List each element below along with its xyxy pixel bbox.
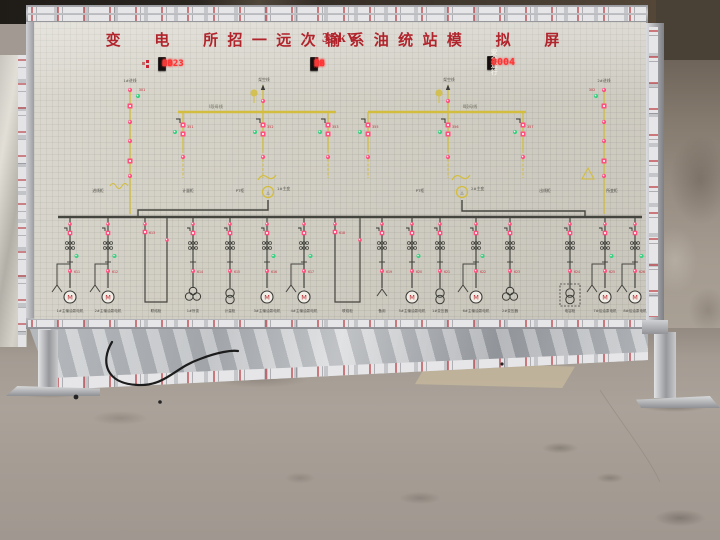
date-day-unit: 日: [162, 61, 168, 67]
left-leg: [38, 330, 58, 390]
frame-left-rail: [26, 22, 34, 320]
right-leg: [654, 332, 676, 398]
frame-bottom-rail: [26, 318, 648, 329]
frame-sticker-row: [28, 15, 646, 21]
safety-days-display: 安全运行 0004 天: [487, 56, 495, 70]
panel-title: 招 远 输 油 站 35kV 变 电 所 一 次 系 统 模 拟 屏: [40, 28, 640, 50]
frame-sticker-row: [28, 7, 646, 13]
mimic-board-face: [34, 22, 646, 319]
date-ornament-dots: [146, 60, 149, 63]
safety-unit: 天: [491, 60, 498, 67]
workshop-scene: 招 远 输 油 站 35kV 变 电 所 一 次 系 统 模 拟 屏 2023 …: [0, 0, 720, 540]
frame-sticker-column: [649, 27, 658, 317]
title-part2: 变 电 所 一 次 系 统 模 拟 屏: [106, 29, 575, 50]
concrete-wall: [660, 60, 720, 335]
date-led-display: 2023 年 03 月 03 日: [158, 57, 166, 71]
right-post-base: [642, 320, 668, 334]
wrapped-spare-panel: [0, 55, 27, 347]
weekday-value: 5: [314, 60, 319, 69]
frame-right-post: [646, 23, 664, 323]
spare-panel-sticker-strip: [18, 55, 26, 347]
frame-top-rail: [26, 5, 648, 23]
frame-sticker-row: [28, 320, 646, 327]
time-led-display: 16 时 12 分 08 秒 星期 5: [310, 57, 318, 71]
